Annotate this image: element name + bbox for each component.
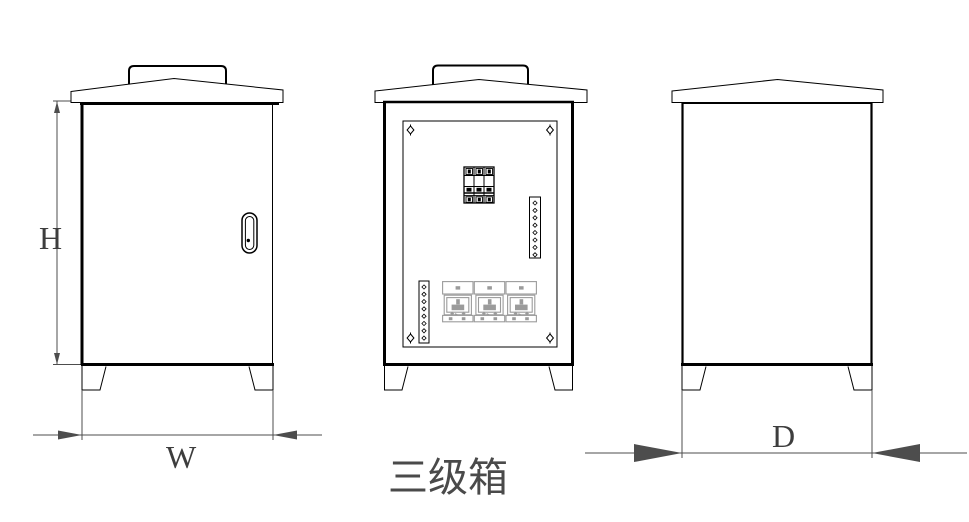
arrow-down-icon [54,353,60,365]
depth-label: D [772,418,795,454]
height-dimension: H [39,101,82,365]
terminal-strip-left [419,281,429,343]
cabinet-body [80,103,279,366]
breaker-toggle [467,188,472,192]
roof [71,79,283,103]
right-leg [549,365,573,390]
breaker-toggle [477,188,482,192]
arrow-left-icon [872,444,920,462]
width-dimension: W [33,390,322,475]
width-label: W [166,439,197,475]
left-leg [385,365,409,390]
side-view [672,80,883,391]
cabinet-body [383,102,574,365]
cabinet-body [681,103,873,366]
terminal-strip-right [530,197,541,258]
handle-lock-dot [247,239,250,242]
drawing-title: 三级箱 [388,455,508,500]
left-leg [682,365,706,390]
arrow-right-icon [634,444,682,462]
socket-row [443,282,537,322]
roof [375,80,587,103]
arrow-up-icon [54,102,60,114]
breaker-toggle [487,188,492,192]
roof [672,80,883,103]
arrow-left-icon [273,431,297,440]
left-leg [82,365,106,390]
height-label: H [39,220,62,256]
right-leg [249,365,273,390]
door-handle [242,213,257,253]
front-view-door-closed [71,66,283,390]
circuit-breaker [464,167,494,203]
arrow-right-icon [58,431,82,440]
front-view-door-open [375,66,587,391]
drawing-canvas: H W [0,0,969,522]
right-leg [848,365,872,390]
depth-dimension: D [585,390,967,462]
